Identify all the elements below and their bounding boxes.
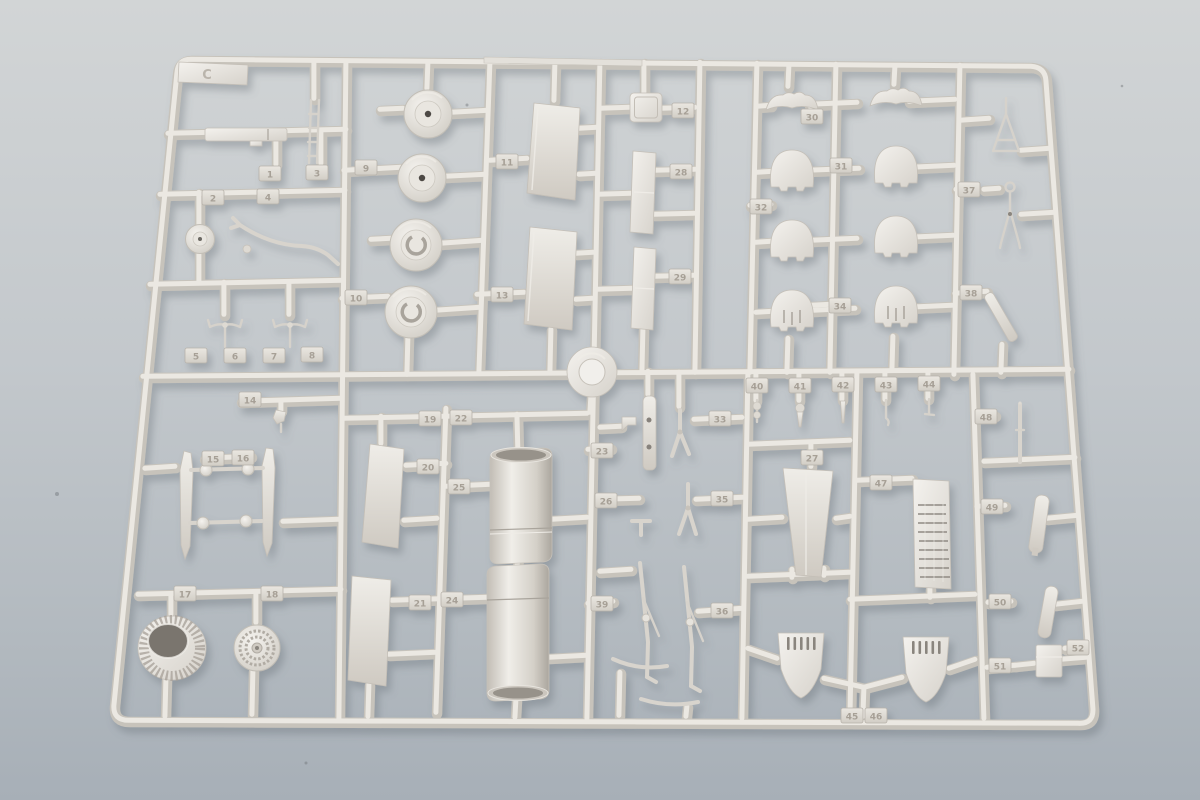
part-number-tab: 35 [711,491,733,506]
engine-cowl-section [875,216,918,257]
svg-text:11: 11 [501,159,514,169]
part-number-tab: 10 [345,290,367,305]
svg-text:36: 36 [716,608,729,618]
svg-text:34: 34 [834,303,847,313]
svg-text:1: 1 [267,171,273,181]
part-number-tab: 9 [355,160,377,175]
svg-text:24: 24 [446,597,459,607]
svg-text:38: 38 [965,290,978,300]
tail-wheel-hub [186,225,215,254]
part-number-tab: 44 [918,376,940,391]
svg-text:35: 35 [716,496,729,506]
part-number-tab: 13 [491,287,513,302]
svg-text:41: 41 [794,383,807,393]
svg-text:7: 7 [271,353,277,363]
svg-text:37: 37 [963,187,976,197]
main-wheel [385,286,437,338]
cockpit-bar-part [643,396,656,470]
svg-text:5: 5 [193,353,199,363]
part-number-tab: 38 [960,285,982,300]
part-number-tab: 47 [870,475,892,490]
part-number-tab: 40 [746,378,768,393]
drop-tank-cylinder [487,564,549,701]
part-number-tab: 12 [672,103,694,118]
sprue-photo-canvas: C [0,0,1200,800]
drop-tank-cylinder [490,448,552,565]
svg-text:27: 27 [806,455,819,465]
svg-text:28: 28 [675,169,688,179]
part-number-tab: 19 [419,411,441,426]
svg-text:52: 52 [1072,645,1085,655]
part-number-tab: 36 [711,603,733,618]
flap-panel [524,227,577,330]
svg-text:43: 43 [880,382,893,392]
part-number-tab: 31 [830,158,852,173]
svg-text:46: 46 [870,713,883,723]
part-number-tab: 8 [301,347,323,362]
flap-panel [348,576,391,686]
part-number-tab: 51 [989,658,1011,673]
small-box-part [1036,645,1062,677]
part-number-tab: 22 [450,410,472,425]
radiator-core [913,479,951,589]
svg-text:50: 50 [994,599,1007,609]
part-number-tab: 29 [669,269,691,284]
part-number-tab: 25 [448,479,470,494]
part-number-tab: 27 [801,450,823,465]
svg-text:10: 10 [350,295,363,305]
part-number-tab: 21 [409,595,431,610]
part-number-tab: 14 [239,392,261,407]
svg-text:29: 29 [674,274,687,284]
part-number-tab: 43 [875,377,897,392]
part-number-tab: 17 [174,586,196,601]
svg-text:12: 12 [677,108,690,118]
part-number-tab: 41 [789,378,811,393]
main-wheel [390,219,442,271]
svg-text:33: 33 [714,416,727,426]
part-number-tab: 2 [202,190,224,205]
svg-text:47: 47 [875,480,888,490]
engine-cowl-section [771,220,814,261]
part-number-tab: 52 [1067,640,1089,655]
svg-text:17: 17 [179,591,192,601]
part-number-tab: 7 [263,348,285,363]
part-number-tab: 49 [981,499,1003,514]
part-number-tab: 11 [496,154,518,169]
part-number-tab: 16 [232,450,254,465]
svg-text:3: 3 [314,170,320,180]
svg-text:8: 8 [309,352,315,362]
part-number-tab: 50 [989,594,1011,609]
svg-text:4: 4 [265,194,271,204]
engine-cowl-section-ribbed [875,286,918,327]
svg-text:21: 21 [414,600,427,610]
svg-text:26: 26 [600,498,613,508]
part-number-tab: 39 [591,596,613,611]
part-number-tab: 4 [257,189,279,204]
cowling-ring-finned [138,616,206,680]
part-number-tab: 3 [306,165,328,180]
part-number-tab: 32 [750,199,772,214]
svg-text:20: 20 [422,464,435,474]
svg-text:16: 16 [237,455,250,465]
svg-text:15: 15 [207,456,220,466]
hatch-plate [631,247,656,330]
sprue-letter-plate: C [178,62,248,85]
engine-cowl-section [875,146,918,187]
part-number-tab: 42 [832,377,854,392]
svg-text:48: 48 [980,414,993,424]
svg-text:51: 51 [994,663,1007,673]
main-wheel [398,154,446,202]
part-number-tab: 30 [801,109,823,124]
svg-text:23: 23 [596,448,609,458]
svg-text:31: 31 [835,163,848,173]
svg-text:14: 14 [244,397,257,407]
svg-text:39: 39 [596,601,609,611]
svg-text:30: 30 [806,114,819,124]
svg-text:22: 22 [455,415,468,425]
part-number-tab: 46 [865,708,887,723]
svg-text:25: 25 [453,484,466,494]
part-number-tab: 18 [261,586,283,601]
svg-text:42: 42 [837,382,850,392]
part-number-tab: 48 [975,409,997,424]
svg-text:13: 13 [496,292,509,302]
part-number-tab: 24 [441,592,463,607]
svg-text:40: 40 [751,383,764,393]
svg-text:49: 49 [986,504,999,514]
part-number-tab: 33 [709,411,731,426]
spinner-back-plate [567,347,617,397]
part-number-tab: 45 [841,708,863,723]
svg-text:19: 19 [424,416,437,426]
svg-text:2: 2 [210,195,216,205]
windscreen-plate [630,93,662,122]
part-number-tab: 23 [591,443,613,458]
svg-text:44: 44 [923,381,936,391]
part-number-tab: 26 [595,493,617,508]
supercharger-disc [234,625,280,671]
part-number-tab: 20 [417,459,439,474]
svg-text:32: 32 [755,204,768,214]
part-number-tab: 28 [670,164,692,179]
svg-text:9: 9 [363,165,369,175]
svg-text:6: 6 [232,353,238,363]
main-wheel [404,90,452,138]
engine-cowl-section-ribbed [771,290,814,331]
part-number-tab: 5 [185,348,207,363]
engine-cowl-section [771,150,814,191]
svg-text:C: C [202,68,212,83]
part-number-tab: 15 [202,451,224,466]
part-number-tab: 37 [958,182,980,197]
hatch-plate [630,151,656,234]
svg-text:45: 45 [846,713,859,723]
flap-panel [527,103,580,200]
part-number-tab: 34 [829,298,851,313]
svg-text:18: 18 [266,591,279,601]
photo-of-model-kit-sprue: C [0,0,1200,800]
part-number-tab: 6 [224,348,246,363]
part-number-tab: 1 [259,166,281,181]
